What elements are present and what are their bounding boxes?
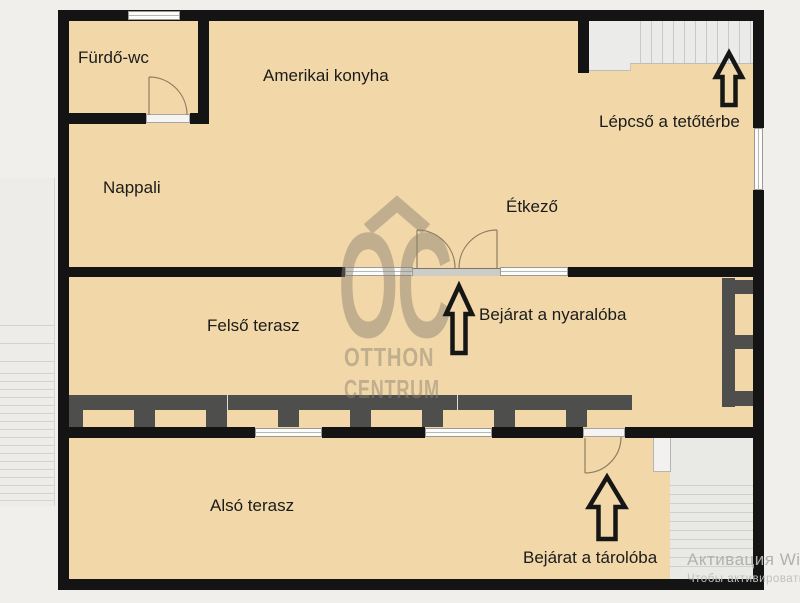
windows-activation-subtitle: Чтобы активировать Windows, перейдите <box>687 573 800 585</box>
annotation-attic-stairs: Lépcső a tetőtérbe <box>599 112 740 132</box>
up-arrow-storage-icon <box>589 477 625 539</box>
annotation-storage-entrance: Bejárat a tárolóba <box>523 548 657 568</box>
up-arrow-entrance-icon <box>446 286 472 353</box>
room-label-upper-terrace: Felső terasz <box>207 316 300 336</box>
room-label-kitchen: Amerikai konyha <box>263 66 389 86</box>
direction-arrows <box>0 0 800 603</box>
up-arrow-attic-icon <box>716 53 742 105</box>
windows-activation-title: Активация Windows <box>687 550 800 570</box>
room-label-dining: Étkező <box>506 197 558 217</box>
room-label-lower-terrace: Alsó terasz <box>210 496 294 516</box>
room-label-bathroom: Fürdő-wc <box>78 48 149 68</box>
annotation-entrance: Bejárat a nyaralóba <box>479 305 626 325</box>
floor-plan-screenshot: { "rooms": { "furdo_wc": "Fürdő-wc", "am… <box>0 0 800 603</box>
room-label-living-room: Nappali <box>103 178 161 198</box>
